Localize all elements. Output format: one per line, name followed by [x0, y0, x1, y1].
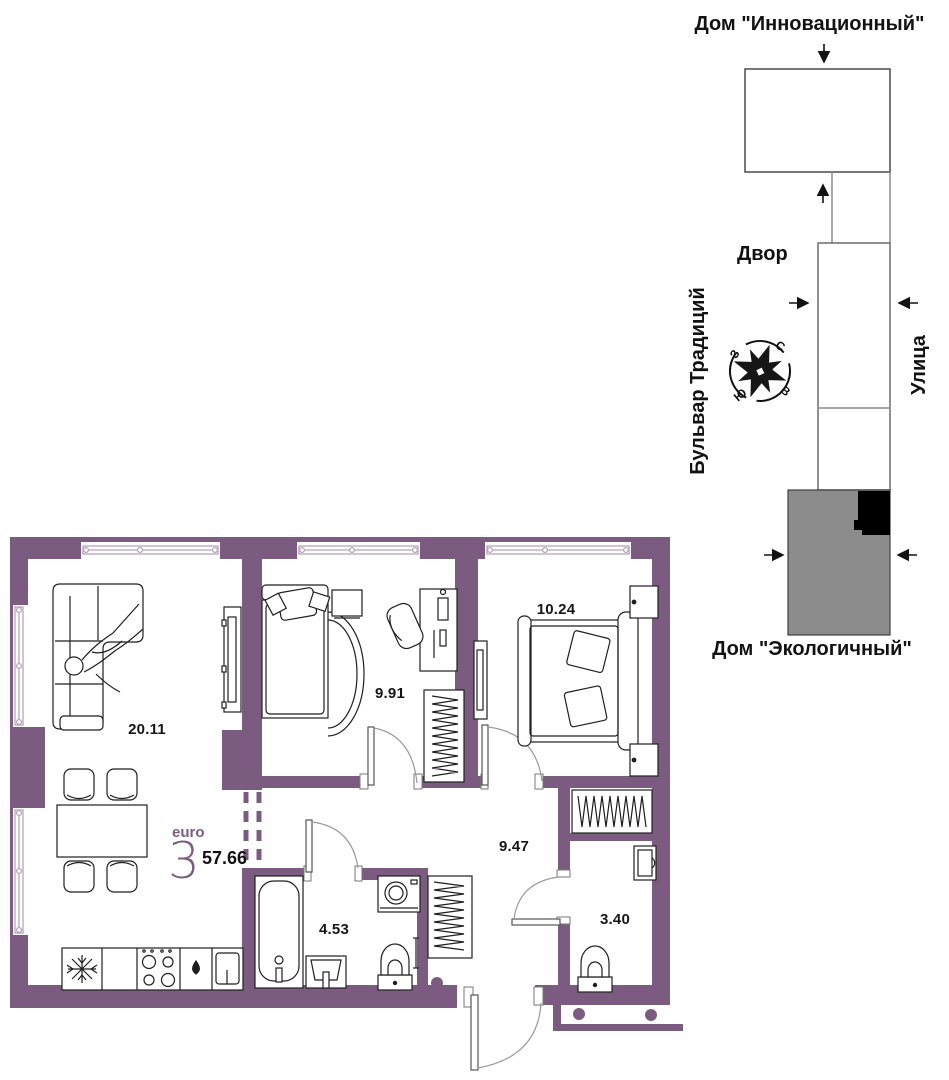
- building-bottom-label: Дом "Экологичный": [684, 638, 940, 661]
- cabinet-icon: [634, 846, 656, 880]
- yard-label: Двор: [737, 243, 788, 266]
- window-icon: [299, 546, 418, 554]
- kitchen-counter: [62, 948, 243, 990]
- building-top-label: Дом "Инновационный": [670, 13, 949, 36]
- desk-icon: [420, 589, 457, 671]
- sofa-icon: [53, 584, 143, 730]
- window-icon: [487, 546, 629, 554]
- building-strip-icon: [818, 243, 890, 490]
- stool-icon: [64, 861, 94, 892]
- total-area-label: 57.66: [202, 848, 247, 869]
- door-arc-bedroom1: [368, 727, 417, 785]
- wardrobe-icon: [428, 876, 472, 958]
- wardrobe-icon: [572, 790, 652, 833]
- door-arc-bathroom: [306, 820, 358, 872]
- room-area-label-bedroom2: 10.24: [530, 601, 582, 618]
- room-area-label-living: 20.11: [124, 721, 170, 738]
- floorplan-drawing: [0, 0, 949, 1080]
- street-label: Улица: [908, 319, 932, 411]
- wardrobe-icon: [424, 690, 464, 782]
- toilet-icon: [578, 946, 612, 992]
- nightstand-icon: [630, 586, 658, 618]
- window-icon: [15, 607, 23, 725]
- rooms-count-label: 3: [168, 842, 200, 881]
- toilet-icon: [378, 938, 419, 990]
- tv-icon: [332, 590, 362, 618]
- apartment-location-marker: [854, 491, 890, 535]
- door-arc-entrance: [471, 995, 541, 1070]
- nightstand-icon: [630, 744, 658, 776]
- building-top-icon: [745, 69, 890, 243]
- stool-icon: [107, 769, 137, 800]
- room-area-label-bathroom: 4.53: [312, 921, 356, 938]
- sink-icon: [216, 953, 239, 984]
- room-area-label-hallway: 9.47: [492, 838, 536, 855]
- tv-icon: [474, 641, 487, 719]
- dining-table-icon: [57, 805, 147, 857]
- stool-icon: [107, 861, 137, 892]
- window-icon: [83, 546, 218, 554]
- kitchen-zone-dashed-wall: [246, 792, 259, 866]
- bathtub-icon: [255, 876, 303, 988]
- minimap: [722, 44, 918, 635]
- washing-machine-icon: [378, 876, 420, 912]
- sink-icon: [306, 956, 346, 988]
- room-area-label-wc: 3.40: [592, 911, 638, 928]
- tv-icon: [222, 607, 241, 712]
- window-icon: [15, 810, 23, 933]
- floorplan-page: Дом "Инновационный" Двор Бульвар Традици…: [0, 0, 949, 1080]
- room-area-label-bedroom1: 9.91: [366, 685, 414, 702]
- building-bottom-icon: [788, 490, 890, 635]
- bed-double-icon: [518, 612, 638, 750]
- boulevard-label: Бульвар Традиций: [687, 271, 711, 491]
- door-arc-wc: [512, 877, 560, 925]
- stool-icon: [64, 769, 94, 800]
